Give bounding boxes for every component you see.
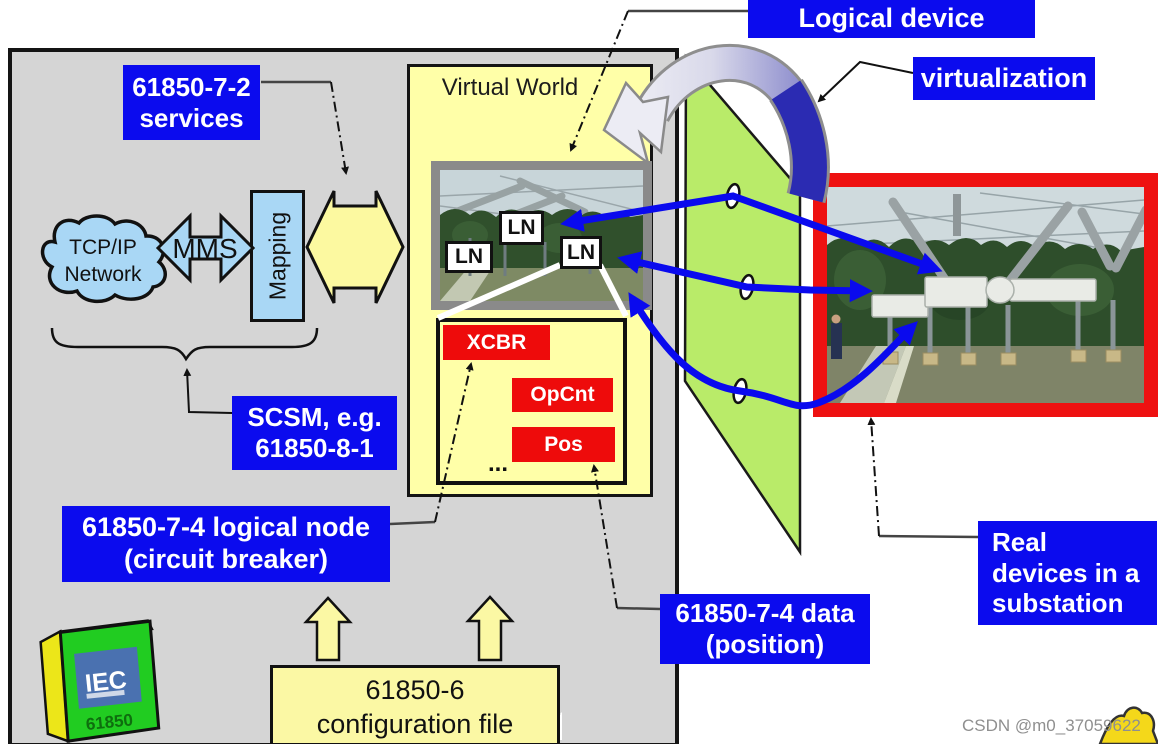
ln-badge-middle: LN (499, 211, 544, 245)
label-data-position: 61850-7-4 data (position) (660, 594, 870, 664)
logical-node-line1: 61850-7-4 logical node (62, 512, 390, 544)
ln-text: LN (455, 245, 483, 269)
xcbr-label: XCBR (467, 331, 527, 355)
virtualization-text: virtualization (913, 63, 1095, 95)
plane-hole-icons (725, 183, 756, 404)
label-logical-device: Logical device (748, 0, 1035, 38)
data-position-line2: (position) (660, 629, 870, 660)
config-file-line2: configuration file (273, 708, 557, 742)
opcnt-node: OpCnt (512, 378, 613, 412)
pointer-real-devices (879, 536, 978, 537)
label-services: 61850-7-2 services (123, 65, 260, 140)
data-position-line1: 61850-7-4 data (660, 598, 870, 629)
services-line1: 61850-7-2 (123, 72, 260, 103)
label-real-devices: Real devices in a substation (978, 521, 1157, 625)
real-devices-line2: devices in a (992, 558, 1139, 589)
services-line2: services (123, 103, 260, 134)
pos-node: Pos (512, 427, 615, 462)
scsm-line1: SCSM, e.g. (232, 402, 397, 433)
logical-device-text: Logical device (748, 3, 1035, 35)
ln-badge-right: LN (560, 236, 602, 269)
scsm-line2: 61850-8-1 (232, 433, 397, 464)
xcbr-node: XCBR (443, 325, 550, 360)
real-devices-line1: Real (992, 527, 1047, 558)
ln-badge-left: LN (445, 241, 493, 273)
green-plane (685, 57, 800, 552)
config-file-note: 61850-6 configuration file (270, 665, 560, 744)
virtual-world-title: Virtual World (407, 74, 613, 102)
ellipsis-label: ... (488, 450, 508, 478)
label-logical-node: 61850-7-4 logical node (circuit breaker) (62, 506, 390, 582)
opcnt-label: OpCnt (530, 383, 594, 407)
pos-label: Pos (544, 433, 583, 457)
watermark: CSDN @m0_37059622 (962, 716, 1141, 736)
config-file-line1: 61850-6 (273, 674, 557, 708)
diagram-canvas: Virtual World XCBR OpCnt Pos ... Mapping… (0, 0, 1158, 744)
pointer-virtualization (819, 62, 913, 101)
real-devices-line3: substation (992, 588, 1123, 619)
substation-photo-frame (813, 173, 1158, 417)
mapping-label: Mapping (264, 212, 291, 300)
ln-text: LN (567, 241, 595, 265)
logical-node-line2: (circuit breaker) (62, 544, 390, 576)
label-scsm: SCSM, e.g. 61850-8-1 (232, 396, 397, 470)
mapping-box: Mapping (250, 190, 305, 322)
label-virtualization: virtualization (913, 57, 1095, 100)
ln-text: LN (508, 216, 536, 240)
